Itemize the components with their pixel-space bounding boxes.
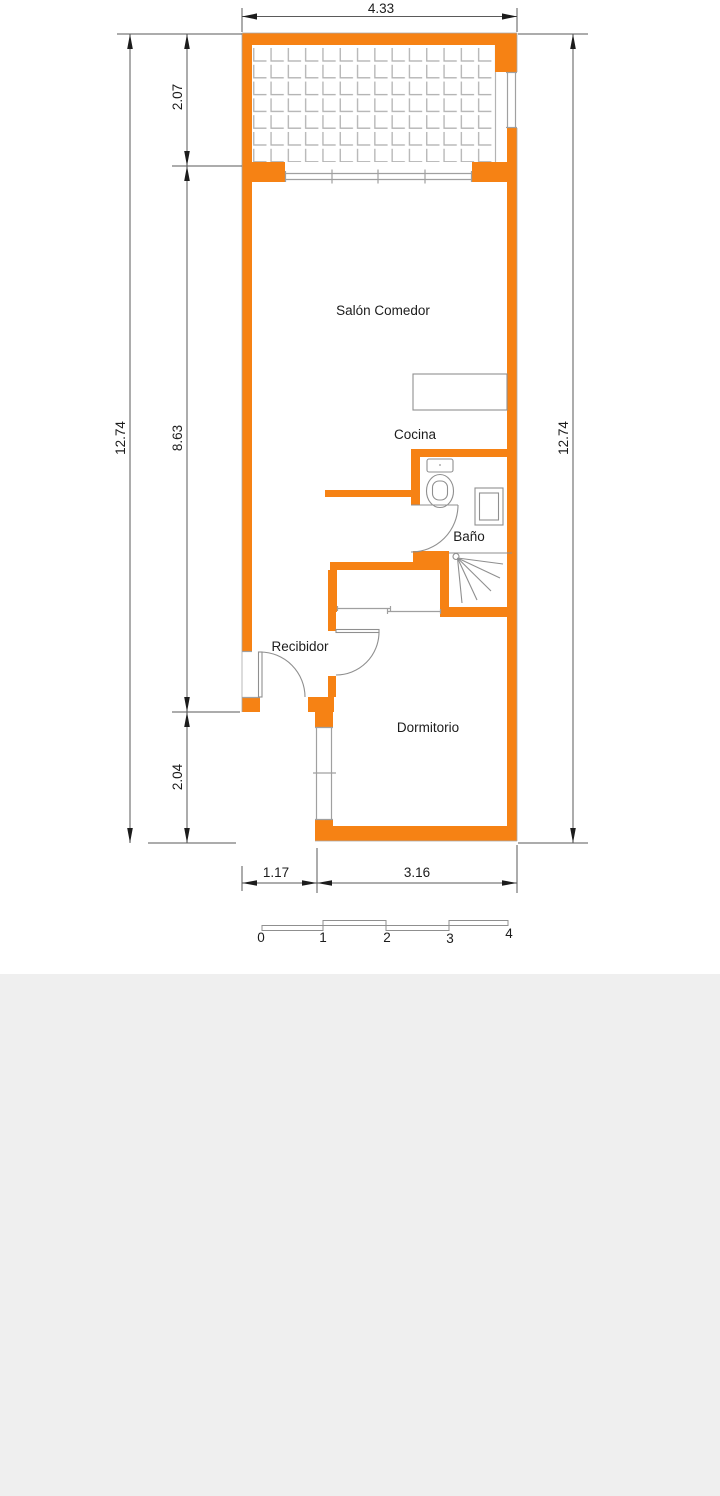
wall-terrace-right-upper: [495, 33, 517, 72]
dimension-left-segments: 2.07 8.63 2.04: [117, 34, 242, 843]
wall-bottom: [315, 826, 517, 841]
wall-left-foot: [242, 697, 260, 712]
wall-hall-divider-stub: [328, 676, 336, 697]
closet-sliding-doors: [337, 606, 441, 614]
terrace-tile-grid: [253, 45, 496, 162]
dim-left-top-label: 2.07: [170, 84, 185, 110]
dormitorio-door-leaf: [336, 630, 379, 633]
scale-tick-2: 2: [383, 930, 391, 945]
floor-plan-drawing: 4.33 12.74 2.07 8.63 2.04 12.74: [0, 0, 720, 1496]
wall-top: [242, 33, 517, 45]
dim-left-total-label: 12.74: [113, 421, 128, 455]
room-label-recibidor: Recibidor: [271, 639, 329, 654]
wall-left: [242, 33, 252, 652]
entrance-door: [242, 652, 305, 698]
terrace-window: [506, 72, 518, 128]
entrance-door-leaf: [259, 652, 263, 697]
kitchen-counter: [413, 374, 507, 410]
dormitorio-door-arc: [336, 632, 379, 675]
wall-bano-top: [411, 449, 507, 457]
scale-tick-0: 0: [257, 930, 265, 945]
wall-stair-bottom: [440, 607, 517, 617]
wall-terrace-bottom-right: [472, 162, 517, 182]
room-label-dormitorio: Dormitorio: [397, 720, 459, 735]
dim-bottom-right-label: 3.16: [404, 865, 430, 880]
room-label-cocina: Cocina: [394, 427, 437, 442]
scale-tick-1: 1: [319, 930, 327, 945]
entrance-door-arc: [261, 652, 306, 697]
dimension-bottom-widths: 1.17 3.16: [242, 845, 517, 893]
wall-dorm-left-lower: [315, 820, 333, 827]
salon-window: [285, 170, 472, 184]
floor-plan-page: 4.33 12.74 2.07 8.63 2.04 12.74: [0, 0, 720, 1496]
scale-bar: 0 1 2 3 4: [257, 921, 513, 947]
room-label-salon-comedor: Salón Comedor: [336, 303, 430, 318]
dormitorio-window: [313, 727, 336, 820]
scale-tick-4: 4: [505, 926, 513, 941]
bano-door-arc: [411, 505, 458, 552]
wall-dorm-left-upper: [315, 712, 333, 727]
wall-right: [507, 128, 517, 841]
dimension-left-total: 12.74: [113, 34, 133, 843]
wall-closet-top: [330, 562, 447, 570]
dimension-right-total: 12.74: [518, 34, 588, 843]
wall-entrance-corner: [308, 697, 334, 712]
lower-background-band: [0, 974, 720, 1496]
dim-left-bottom-label: 2.04: [170, 763, 185, 790]
stair-fan-icon: [449, 553, 512, 603]
wall-terrace-bottom-left: [243, 162, 285, 182]
dim-left-middle-label: 8.63: [170, 425, 185, 451]
bano-door: [411, 505, 458, 552]
toilet-icon: [427, 459, 454, 508]
room-label-bano: Baño: [453, 529, 485, 544]
dim-top-width-label: 4.33: [368, 1, 394, 16]
dim-right-total-label: 12.74: [556, 421, 571, 455]
scale-tick-3: 3: [446, 931, 454, 946]
dimension-top-width: 4.33: [242, 1, 517, 32]
dormitorio-door: [336, 630, 379, 676]
washbasin-icon: [475, 488, 503, 525]
dim-bottom-left-label: 1.17: [263, 865, 289, 880]
wall-hall-divider-upper: [328, 570, 336, 631]
wall-kitchen-divider: [325, 490, 415, 497]
